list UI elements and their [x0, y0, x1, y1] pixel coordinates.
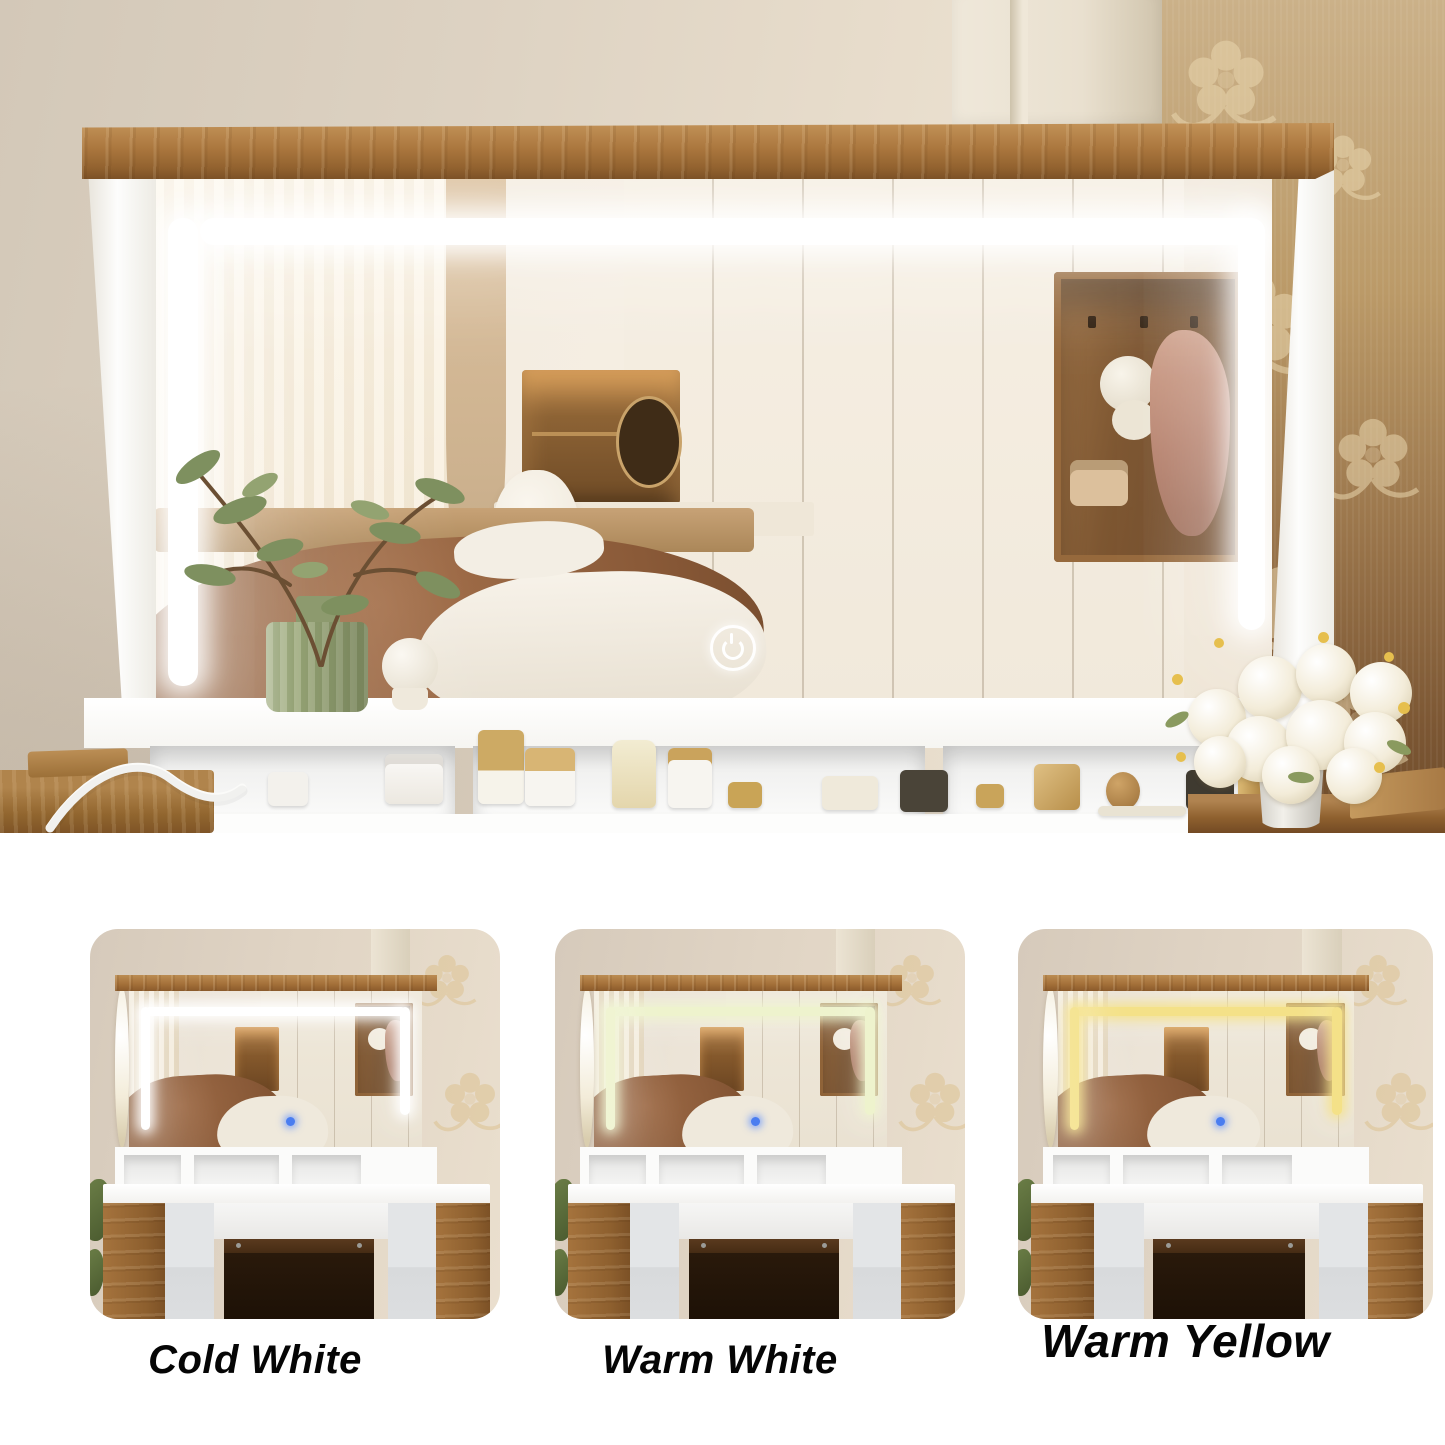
screw [1166, 1243, 1171, 1248]
variant-card-warm-yellow [1018, 929, 1433, 1319]
perfume-bottle [612, 740, 656, 808]
cosmetic-jar [268, 772, 308, 806]
lotion-bottle [668, 748, 712, 808]
screw [357, 1243, 362, 1248]
card-frame-right [887, 987, 902, 1148]
white-gourd-base [392, 688, 428, 710]
wood-cabinet-left [568, 1203, 630, 1319]
coat-hook [1190, 316, 1198, 328]
panel-groove [1010, 0, 1028, 132]
gold-cosmetic [976, 784, 1004, 808]
screw [701, 1243, 706, 1248]
niche-shelf [532, 432, 628, 436]
wood-cabinet-right [1368, 1203, 1423, 1319]
card-led-mirror [1058, 988, 1354, 1148]
gray-drawers-right [388, 1203, 436, 1319]
led-strip-top [1074, 1007, 1338, 1017]
shelf-compartment [589, 1155, 645, 1184]
product-image: Cold White Warm White Warm Yellow [0, 0, 1445, 1445]
cosmetic-tray [1098, 806, 1186, 816]
led-strip-left [1070, 1007, 1079, 1130]
card-cabinet-base [1031, 1203, 1422, 1319]
led-strip-left [606, 1007, 615, 1130]
touch-sensor-dot [751, 1117, 760, 1126]
cream-jar [822, 776, 878, 810]
power-cable [30, 730, 260, 833]
card-wood-top [115, 975, 437, 991]
led-strip-top [145, 1007, 406, 1017]
gray-drawers-left [165, 1203, 214, 1319]
card-led-mirror [594, 988, 887, 1148]
screw [236, 1243, 241, 1248]
card-desktop [568, 1184, 955, 1203]
card-frame-left [1043, 987, 1058, 1148]
shelf-compartment [292, 1155, 361, 1184]
shelf-compartment [124, 1155, 180, 1184]
dark-jar [900, 770, 948, 812]
led-strip-right [1238, 218, 1265, 630]
variant-card-warm-white [555, 929, 965, 1319]
knee-space [1153, 1239, 1305, 1319]
card-frame-right [422, 987, 437, 1148]
shelf-compartment [194, 1155, 279, 1184]
led-strip-right [865, 1007, 874, 1116]
gray-drawers-left [1094, 1203, 1144, 1319]
shelf-compartment [1123, 1155, 1209, 1184]
screw [822, 1243, 827, 1248]
shelf-compartment [1222, 1155, 1292, 1184]
handbag [1070, 460, 1128, 506]
gray-drawers-right [853, 1203, 901, 1319]
center-drawer [1144, 1203, 1320, 1239]
screw [1288, 1243, 1293, 1248]
wood-top-shelf [82, 123, 1334, 179]
card-desktop [1031, 1184, 1422, 1203]
center-drawer [679, 1203, 853, 1239]
knee-space-bar [1153, 1239, 1305, 1253]
card-frame-left [115, 987, 130, 1148]
hanging-coat [1150, 330, 1230, 536]
knee-space [689, 1239, 839, 1319]
card-desktop [103, 1184, 490, 1203]
flower-bouquet [1168, 634, 1413, 789]
wood-cabinet-right [901, 1203, 955, 1319]
card-wood-top [1043, 975, 1369, 991]
coat-hook [1140, 316, 1148, 328]
ceiling-cabinet-panel [952, 0, 1162, 132]
perfume-box [478, 730, 524, 804]
led-strip-right [400, 1007, 409, 1116]
wooden-egg [1106, 772, 1140, 810]
shelf-compartment [757, 1155, 826, 1184]
card-cabinet-base [103, 1203, 490, 1319]
led-strip-top [200, 218, 1262, 245]
power-icon [722, 638, 744, 660]
knee-space-bar [224, 1239, 374, 1253]
variant-label-cold-white: Cold White [50, 1338, 460, 1383]
card-wood-top [580, 975, 902, 991]
wood-cabinet-right [436, 1203, 490, 1319]
variant-label-warm-white: Warm White [515, 1338, 925, 1383]
power-touch-button [710, 625, 756, 671]
wood-cabinet-left [103, 1203, 165, 1319]
gold-cosmetic [728, 782, 762, 808]
touch-sensor-dot [286, 1117, 295, 1126]
led-strip-top [610, 1007, 871, 1017]
gray-drawers-left [630, 1203, 679, 1319]
card-frame-right [1354, 987, 1369, 1148]
wood-cabinet-left [1031, 1203, 1094, 1319]
variant-label-warm-yellow: Warm Yellow [978, 1314, 1393, 1368]
card-frame-left [580, 987, 595, 1148]
round-mirror [616, 396, 682, 488]
shelf-compartment [659, 1155, 744, 1184]
variant-card-cold-white [90, 929, 500, 1319]
led-strip-left [141, 1007, 150, 1130]
plant-branch [140, 415, 480, 685]
power-icon-stem [730, 633, 733, 644]
cosmetic-jar [385, 754, 443, 804]
led-strip-right [1332, 1007, 1341, 1116]
coat-hook [1088, 316, 1096, 328]
gray-drawers-right [1319, 1203, 1368, 1319]
knee-space-bar [689, 1239, 839, 1253]
card-led-mirror [129, 988, 422, 1148]
card-cabinet-base [568, 1203, 955, 1319]
storage-shelf-bottom [84, 814, 1334, 833]
gold-perfume-bottle [1034, 764, 1080, 810]
reflection-coat-niche [1054, 272, 1242, 562]
center-drawer [214, 1203, 388, 1239]
shelf-compartment [1053, 1155, 1110, 1184]
hero-photo [0, 0, 1445, 833]
gold-cap-bottle [525, 748, 575, 806]
knee-space [224, 1239, 374, 1319]
